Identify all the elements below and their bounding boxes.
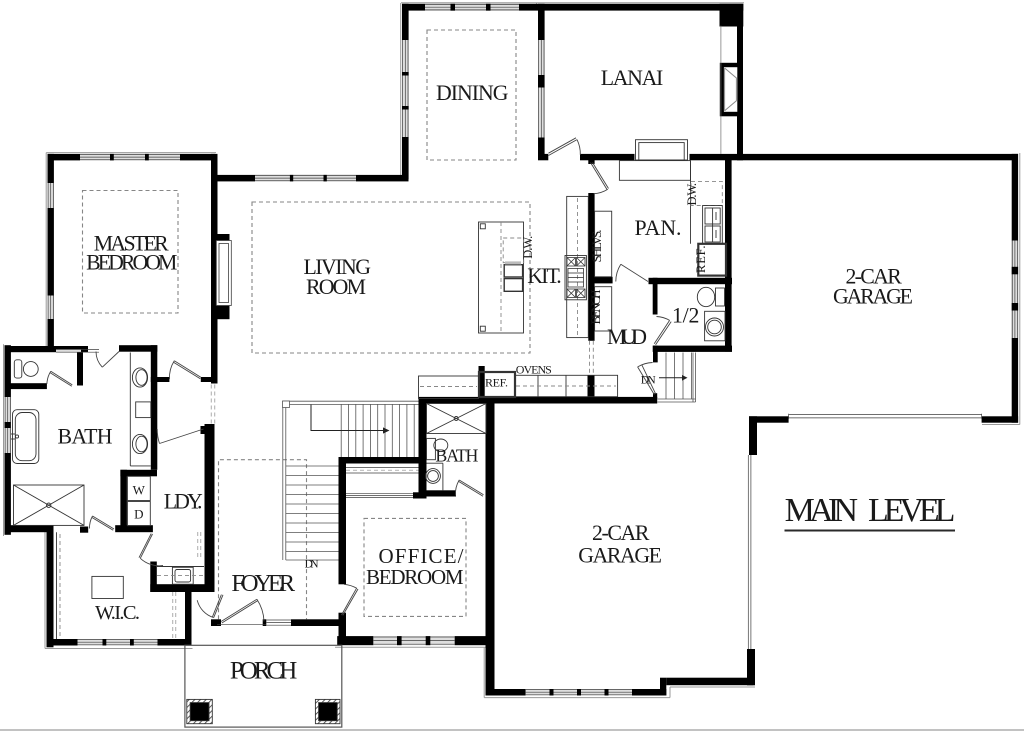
svg-text:ROOM: ROOM — [306, 275, 366, 299]
svg-text:MAIN: MAIN — [785, 492, 858, 529]
svg-text:OVENS: OVENS — [516, 362, 552, 376]
svg-text:REF.: REF. — [694, 245, 708, 273]
svg-text:D.W.: D.W. — [685, 183, 699, 206]
svg-text:DN: DN — [641, 374, 657, 386]
svg-text:FOYER: FOYER — [231, 570, 295, 597]
svg-text:LANAI: LANAI — [601, 66, 664, 90]
svg-text:W: W — [133, 482, 146, 497]
svg-text:DINING: DINING — [436, 81, 509, 105]
svg-text:LEVEL: LEVEL — [868, 492, 956, 529]
svg-text:GARAGE: GARAGE — [833, 284, 913, 308]
svg-text:MUD: MUD — [607, 325, 647, 349]
svg-text:KIT.: KIT. — [527, 264, 562, 288]
svg-text:PORCH: PORCH — [230, 658, 297, 685]
svg-text:BATH: BATH — [435, 445, 478, 465]
svg-text:LDY.: LDY. — [164, 489, 203, 513]
svg-text:REF.: REF. — [485, 375, 508, 389]
svg-text:BENCH: BENCH — [588, 290, 603, 325]
svg-text:BATH: BATH — [58, 425, 113, 449]
svg-text:D.W.: D.W. — [521, 236, 535, 259]
svg-text:DN: DN — [305, 558, 320, 570]
svg-text:D: D — [134, 506, 143, 521]
svg-text:BEDROOM: BEDROOM — [86, 250, 177, 274]
svg-text:PAN.: PAN. — [635, 216, 682, 240]
svg-text:SHLVS.: SHLVS. — [589, 230, 604, 263]
svg-text:BEDROOM: BEDROOM — [366, 565, 464, 589]
svg-text:GARAGE: GARAGE — [578, 544, 662, 568]
svg-text:W.I.C.: W.I.C. — [95, 602, 140, 624]
svg-text:2-CAR: 2-CAR — [592, 521, 650, 545]
svg-text:1/2: 1/2 — [672, 304, 700, 328]
